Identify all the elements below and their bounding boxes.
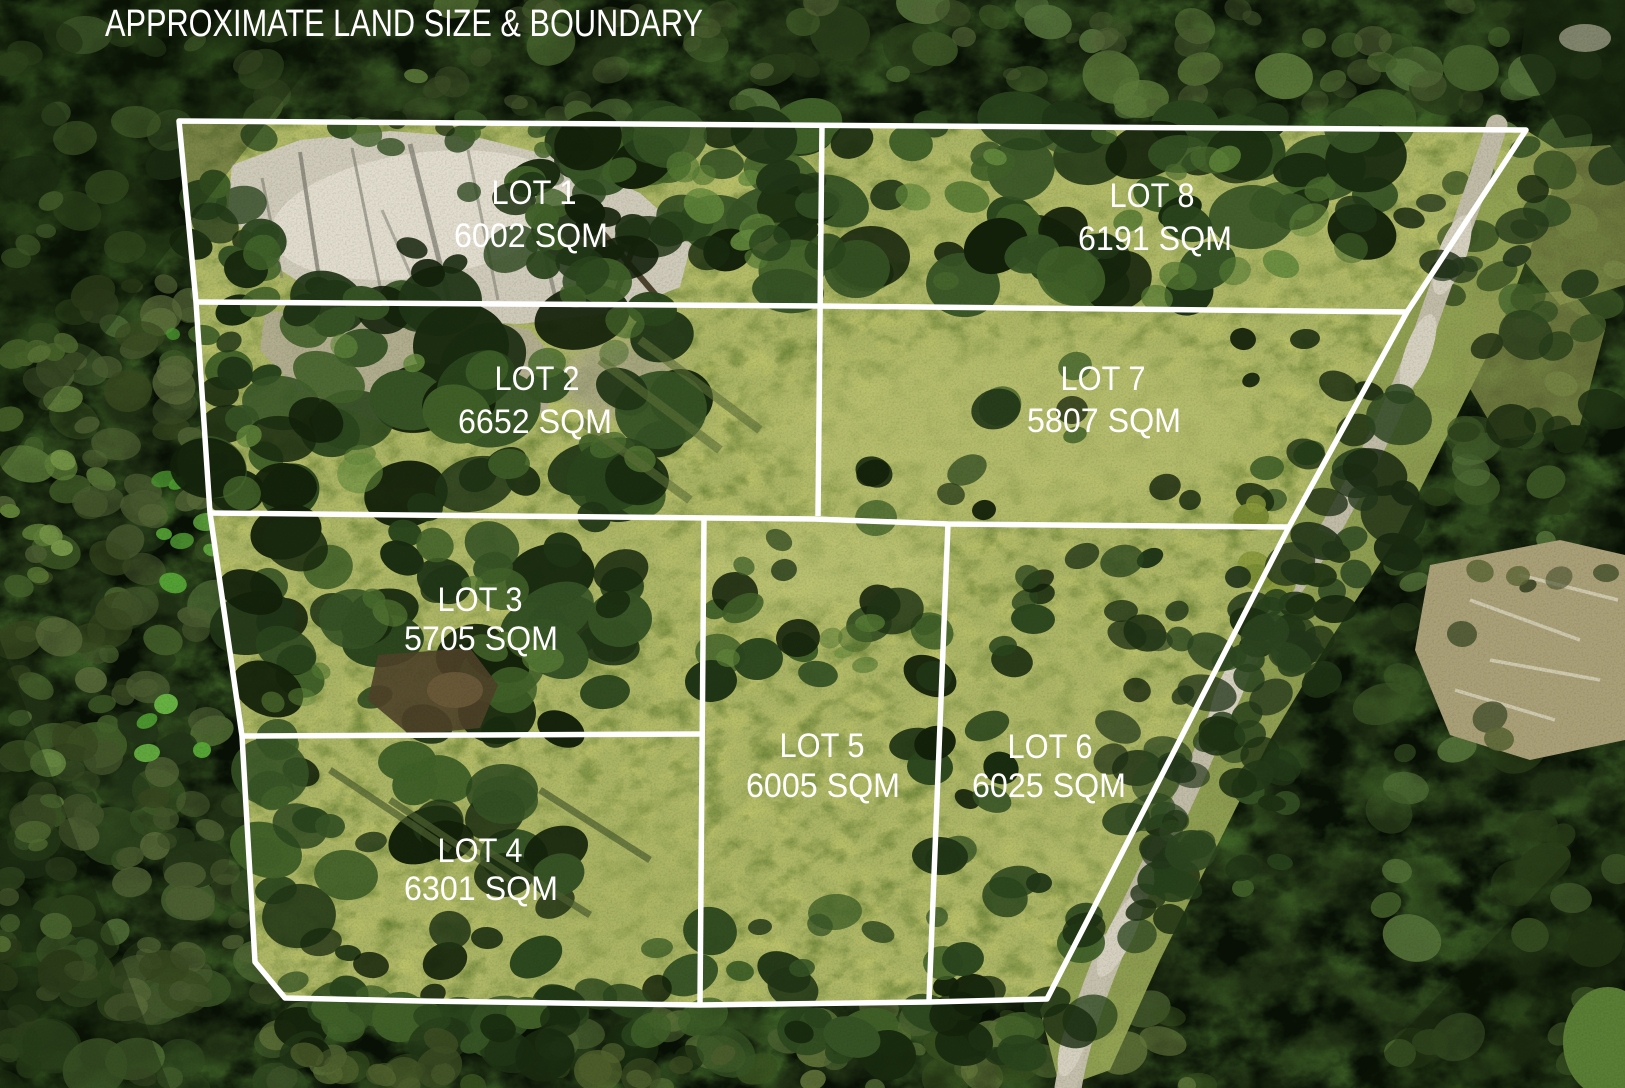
svg-text:5705 SQM: 5705 SQM [404, 620, 558, 658]
svg-text:LOT 4: LOT 4 [438, 832, 523, 870]
svg-text:6652 SQM: 6652 SQM [458, 403, 612, 441]
svg-text:6191 SQM: 6191 SQM [1078, 220, 1232, 258]
svg-text:LOT 5: LOT 5 [780, 727, 865, 765]
svg-text:LOT 3: LOT 3 [438, 581, 523, 619]
svg-text:6301 SQM: 6301 SQM [404, 870, 558, 908]
svg-text:LOT 2: LOT 2 [495, 360, 580, 398]
svg-text:LOT 8: LOT 8 [1110, 177, 1195, 215]
svg-text:APPROXIMATE LAND SIZE & BOUNDA: APPROXIMATE LAND SIZE & BOUNDARY [105, 3, 703, 45]
svg-text:6025 SQM: 6025 SQM [972, 767, 1126, 805]
svg-text:6002 SQM: 6002 SQM [454, 217, 608, 255]
svg-text:LOT 7: LOT 7 [1061, 360, 1146, 398]
svg-text:LOT 6: LOT 6 [1008, 728, 1093, 766]
svg-text:6005 SQM: 6005 SQM [746, 767, 900, 805]
svg-text:LOT 1: LOT 1 [492, 174, 577, 212]
svg-text:5807 SQM: 5807 SQM [1027, 402, 1181, 440]
